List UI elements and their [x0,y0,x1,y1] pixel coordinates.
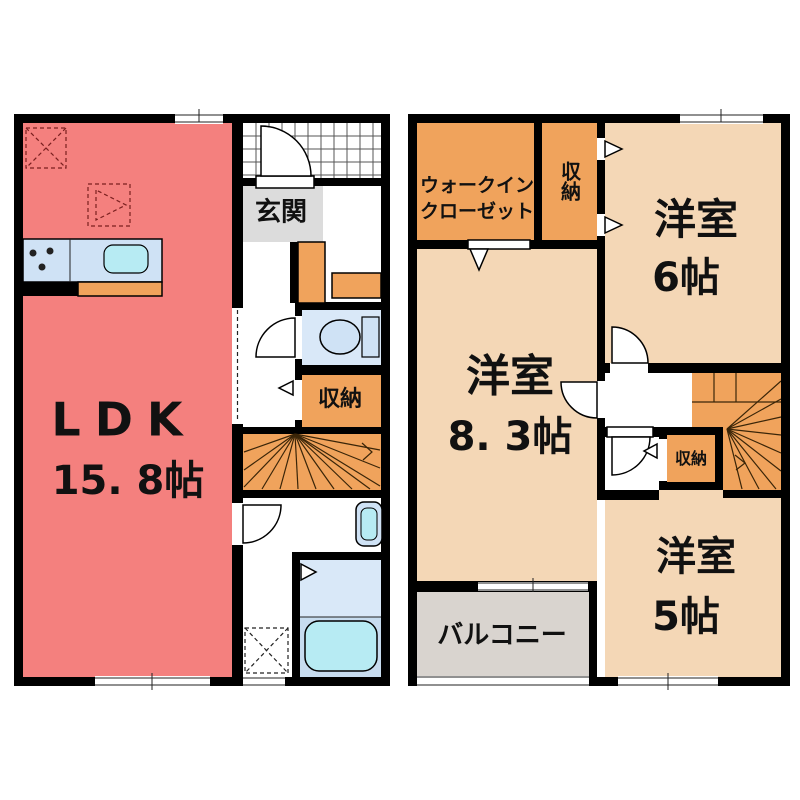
floor2-hallway [605,373,692,427]
room5-door-sill [607,427,653,437]
wic-label-line1: ウォークイン [420,176,534,197]
toilet-fixture [320,317,379,357]
stove-burner [39,264,46,271]
room6-size-label: 6帖 [652,256,720,300]
floor1-stairs [243,434,381,490]
balcony-label: バルコニー [437,622,566,651]
washbasin [356,502,382,546]
stove-burner [47,248,54,255]
kitchen-counter [23,239,162,296]
shoe-cabinet-2 [332,273,381,298]
window [175,109,223,124]
kitchen-sink [104,245,148,273]
window [243,676,285,687]
floorplan-image: 玄関 収納 LDK 15. 8帖 ウォークイン クローゼット 収納 洋室 6帖 … [0,0,800,800]
ldk-size-label: 15. 8帖 [52,459,205,503]
shoe-cabinet-1 [298,242,325,303]
balcony-railing [417,676,589,687]
room6-name-label: 洋室 [654,197,738,243]
window [680,109,763,124]
floor1-closet-label: 収納 [318,388,362,412]
wic-door-sill [468,240,530,249]
room5-name-label: 洋室 [656,535,736,579]
room83-size-label: 8. 3帖 [448,415,573,459]
wic-label-line2: クローゼット [420,202,534,223]
stove-burner [30,250,37,257]
ldk-name-label: LDK [51,395,196,446]
bathtub [305,621,377,671]
bathroom [300,560,381,677]
genkan-label: 玄関 [255,199,307,228]
entry-door-sill [256,176,314,188]
room83-name-label: 洋室 [466,353,554,401]
floor2-top-closet-label: 収納 [559,162,583,203]
floor2-mid-closet-label: 収納 [675,450,707,468]
room5-size-label: 5帖 [652,595,720,639]
